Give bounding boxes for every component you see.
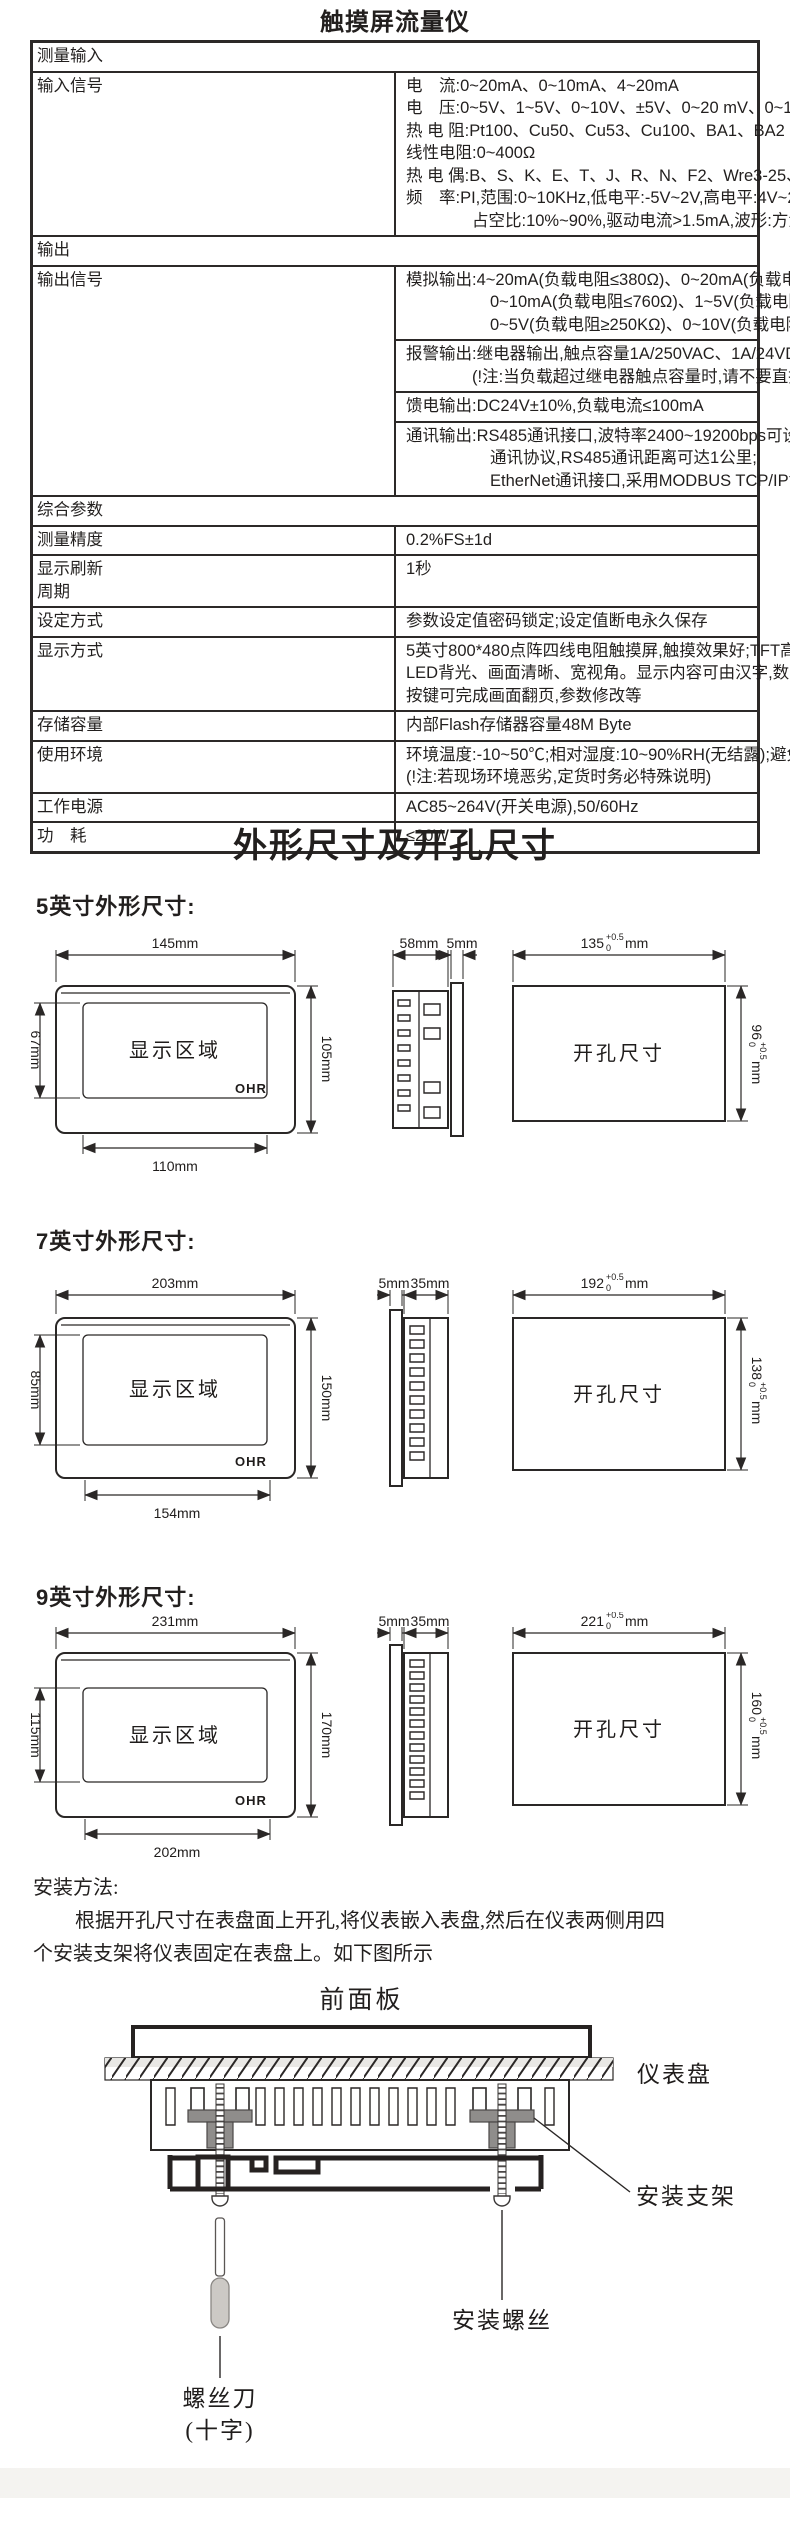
- table-row: 测量精度 0.2%FS±1d: [32, 526, 759, 556]
- cutout-height-dim: 138 +0.5 0 mm: [747, 1357, 768, 1425]
- table-row: 显示刷新 周期 1秒: [32, 555, 759, 607]
- environment-label: 使用环境: [32, 741, 396, 793]
- cutout-height-value: 160: [749, 1692, 765, 1716]
- cutout-label: 开孔尺寸: [573, 1383, 665, 1406]
- cutout-width-value: 135: [581, 935, 605, 951]
- screw-tip: [212, 2196, 228, 2206]
- front-left-dim: 115mm: [28, 1712, 44, 1758]
- cutout-width-tol-minus: 0: [606, 943, 611, 953]
- cutout-height-tol-minus: 0: [747, 1042, 757, 1047]
- screwdriver-handle: [211, 2278, 229, 2328]
- front-view: 145mm 显示区域 OHR 67mm 105mm 110mm: [28, 935, 335, 1174]
- screwdriver: 螺丝刀 (十字): [183, 2218, 258, 2443]
- front-right-dim: 150mm: [319, 1375, 335, 1422]
- cutout-width-value: 192: [581, 1275, 605, 1291]
- dimension-drawing-7inch: 203mm 显示区域 OHR 85mm 150mm 154mm 5mm 35mm…: [0, 1268, 790, 1546]
- output-feed-value: 馈电输出:DC24V±10%,负载电流≤100mA: [395, 392, 759, 422]
- table-row: 综合参数: [32, 496, 759, 526]
- table-row: 输出信号 模拟输出:4~20mA(负载电阻≤380Ω)、0~20mA(负载电阻≤…: [32, 266, 759, 341]
- setting-label: 设定方式: [32, 607, 396, 637]
- cutout-view: 192 +0.5 0 mm 开孔尺寸 138 +0.5 0 mm: [513, 1272, 768, 1470]
- spec-line: (!注:当负载超过继电器触点容量时,请不要直接带负载): [406, 366, 749, 389]
- cutout-width-dim: 221 +0.5 0 mm: [581, 1612, 649, 1631]
- brand-logo: OHR: [235, 1081, 267, 1096]
- terminal-slots: [410, 1660, 424, 1799]
- input-signal-value: 电 流:0~20mA、0~10mA、4~20mA 电 压:0~5V、1~5V、0…: [395, 72, 759, 237]
- refresh-label-line: 显示刷新: [37, 558, 392, 581]
- input-signal-label: 输入信号: [32, 72, 396, 237]
- side-bezel-dim: 5mm: [378, 1275, 409, 1291]
- cutout-height-tol-plus: +0.5: [758, 1717, 768, 1735]
- model-5-heading: 5英寸外形尺寸:: [36, 889, 196, 921]
- front-panel-label: 前面板: [133, 1980, 590, 2016]
- refresh-label-line: 周期: [37, 581, 392, 604]
- side-view: 58mm 5mm: [393, 935, 478, 1136]
- terminal-slots: [410, 1326, 424, 1460]
- spec-line: 电 压:0~5V、1~5V、0~10V、±5V、0~20 mV、0~100mV、…: [406, 97, 749, 120]
- cutout-width-tol-plus: +0.5: [606, 932, 624, 942]
- cutout-height-tol-plus: +0.5: [758, 1382, 768, 1400]
- accuracy-value: 0.2%FS±1d: [395, 526, 759, 556]
- screwdriver-sublabel: (十字): [185, 2418, 254, 2443]
- terminal-slots: [398, 1000, 410, 1111]
- front-top-dim: 231mm: [152, 1613, 199, 1629]
- cutout-width-unit: mm: [625, 1613, 648, 1629]
- side-depth-dim: 58mm: [400, 935, 439, 951]
- accuracy-label: 测量精度: [32, 526, 396, 556]
- model-7-heading: 7英寸外形尺寸:: [36, 1224, 196, 1256]
- display-area-label: 显示区域: [129, 1039, 221, 1062]
- side-bezel-dim: 5mm: [446, 935, 477, 951]
- spec-line: 线性电阻:0~400Ω: [406, 142, 749, 165]
- brand-logo: OHR: [235, 1793, 267, 1808]
- side-view: 5mm 35mm: [377, 1275, 449, 1486]
- front-left-dim: 85mm: [28, 1371, 44, 1410]
- cutout-view: 135 +0.5 0 mm 开孔尺寸 96 +0.5 0 mm: [513, 932, 768, 1121]
- cutout-width-unit: mm: [625, 1275, 648, 1291]
- datasheet-page: { "page_title": "触摸屏流量仪", "spec_table": …: [0, 0, 790, 2523]
- dimension-drawing-9inch: 231mm 显示区域 OHR 115mm 170mm 202mm 5mm 35m…: [0, 1612, 790, 1874]
- front-right-dim: 170mm: [319, 1712, 335, 1759]
- display-value: 5英寸800*480点阵四线电阻触摸屏,触摸效果好;TFT高亮度彩色图形液晶显示…: [395, 637, 759, 712]
- table-row: 输出: [32, 236, 759, 266]
- spec-line: 占空比:10%~90%,驱动电流>1.5mA,波形:方波、正弦波、三角波等: [406, 210, 749, 233]
- terminal-blocks: [424, 1004, 440, 1118]
- bracket-clamp: [191, 2088, 204, 2112]
- cutout-height-dim: 96 +0.5 0 mm: [747, 1024, 768, 1084]
- spec-line: 按键可完成画面翻页,参数修改等: [406, 685, 749, 708]
- installation-diagram: 仪表盘 安装支架 安装螺丝: [0, 2012, 790, 2468]
- cutout-label: 开孔尺寸: [573, 1718, 665, 1741]
- spec-line: 模拟输出:4~20mA(负载电阻≤380Ω)、0~20mA(负载电阻≤380Ω)…: [406, 269, 749, 292]
- front-left-dim: 67mm: [28, 1031, 44, 1070]
- dimension-drawing-5inch: 145mm 显示区域 OHR 67mm 105mm 110mm 58mm 5mm…: [0, 928, 790, 1194]
- display-area-label: 显示区域: [129, 1724, 221, 1747]
- front-top-dim: 145mm: [152, 935, 199, 951]
- front-panel-shape: [133, 2027, 590, 2058]
- install-heading: 安装方法:: [33, 1872, 757, 1905]
- spec-line: 1秒: [406, 558, 749, 581]
- table-row: 显示方式 5英寸800*480点阵四线电阻触摸屏,触摸效果好;TFT高亮度彩色图…: [32, 637, 759, 712]
- spec-line: 0~10mA(负载电阻≤760Ω)、1~5V(负载电阻≥250KΩ)、: [406, 291, 749, 314]
- front-bottom-dim: 110mm: [152, 1158, 198, 1174]
- environment-value: 环境温度:-10~50℃;相对湿度:10~90%RH(无结露);避免强腐蚀气体。…: [395, 741, 759, 793]
- panel-label: 仪表盘: [637, 2062, 712, 2087]
- spec-line: EtherNet通讯接口,采用MODBUS TCP/IP协议,通讯速率为10/1…: [406, 470, 749, 493]
- spec-line: 报警输出:继电器输出,触点容量1A/250VAC、1A/24VDC;固态继电器输…: [406, 343, 749, 366]
- spec-line: 环境温度:-10~50℃;相对湿度:10~90%RH(无结露);避免强腐蚀气体。: [406, 744, 749, 767]
- bezel-plate: [451, 983, 463, 1136]
- cutout-height-dim: 160 +0.5 0 mm: [747, 1692, 768, 1760]
- lower-housing: [170, 2155, 541, 2189]
- screw-label: 安装螺丝: [452, 2308, 552, 2333]
- bracket-clamp: [473, 2088, 486, 2112]
- screw-tip: [494, 2196, 510, 2206]
- front-view: 203mm 显示区域 OHR 85mm 150mm 154mm: [28, 1275, 335, 1521]
- spec-line: 频 率:PI,范围:0~10KHz,低电平:-5V~2V,高电平:4V~26V,: [406, 187, 749, 210]
- side-depth-dim: 35mm: [411, 1275, 450, 1291]
- table-row: 测量输入: [32, 42, 759, 72]
- storage-label: 存储容量: [32, 711, 396, 741]
- brand-logo: OHR: [235, 1454, 267, 1469]
- front-top-dim: 203mm: [152, 1275, 199, 1291]
- screw-shaft: [498, 2084, 506, 2196]
- spec-line: 0.2%FS±1d: [406, 529, 749, 552]
- spec-line: 5英寸800*480点阵四线电阻触摸屏,触摸效果好;TFT高亮度彩色图形液晶显示…: [406, 640, 749, 663]
- table-row: 使用环境 环境温度:-10~50℃;相对湿度:10~90%RH(无结露);避免强…: [32, 741, 759, 793]
- screwdriver-blade: [216, 2218, 225, 2276]
- spec-line: 馈电输出:DC24V±10%,负载电流≤100mA: [406, 395, 749, 418]
- setting-value: 参数设定值密码锁定;设定值断电永久保存: [395, 607, 759, 637]
- display-area-label: 显示区域: [129, 1378, 221, 1401]
- bracket-leader-line: [534, 2118, 630, 2192]
- refresh-label: 显示刷新 周期: [32, 555, 396, 607]
- cutout-height-tol-minus: 0: [747, 1717, 757, 1722]
- table-row: 存储容量 内部Flash存储器容量48M Byte: [32, 711, 759, 741]
- table-row: 输入信号 电 流:0~20mA、0~10mA、4~20mA 电 压:0~5V、1…: [32, 72, 759, 237]
- spec-line: (!注:若现场环境恶劣,定货时务必特殊说明): [406, 766, 749, 789]
- section-measure-input: 测量输入: [32, 42, 759, 72]
- spec-line: AC85~264V(开关电源),50/60Hz: [406, 796, 749, 819]
- bracket-clamp: [236, 2088, 249, 2112]
- cutout-width-dim: 135 +0.5 0 mm: [581, 932, 649, 953]
- side-bezel-dim: 5mm: [378, 1613, 409, 1629]
- side-depth-dim: 35mm: [411, 1613, 450, 1629]
- install-paragraph-line: 个安装支架将仪表固定在表盘上。如下图所示: [33, 1938, 757, 1971]
- cutout-height-unit: mm: [749, 1401, 765, 1424]
- install-paragraph-line: 根据开孔尺寸在表盘面上开孔,将仪表嵌入表盘,然后在仪表两侧用四: [33, 1905, 757, 1938]
- section-general: 综合参数: [32, 496, 759, 526]
- front-right-dim: 105mm: [319, 1036, 335, 1083]
- output-alarm-value: 报警输出:继电器输出,触点容量1A/250VAC、1A/24VDC;固态继电器输…: [395, 340, 759, 392]
- spec-line: 热 电 偶:B、S、K、E、T、J、R、N、F2、Wre3-25、Wre5-26: [406, 165, 749, 188]
- screw-shaft: [216, 2084, 224, 2196]
- bezel-plate: [390, 1645, 402, 1825]
- cutout-height-tol-plus: +0.5: [758, 1042, 768, 1060]
- cutout-width-tol-plus: +0.5: [606, 1272, 624, 1282]
- housing-notch: [252, 2158, 266, 2170]
- table-row: 设定方式 参数设定值密码锁定;设定值断电永久保存: [32, 607, 759, 637]
- install-section: 安装方法: 根据开孔尺寸在表盘面上开孔,将仪表嵌入表盘,然后在仪表两侧用四 个安…: [33, 1872, 757, 1971]
- cutout-width-tol-minus: 0: [606, 1621, 611, 1631]
- cutout-width-value: 221: [581, 1613, 605, 1629]
- output-signal-label: 输出信号: [32, 266, 396, 497]
- cutout-width-tol-plus: +0.5: [606, 1612, 624, 1620]
- front-bottom-dim: 202mm: [154, 1844, 201, 1860]
- cutout-width-dim: 192 +0.5 0 mm: [581, 1272, 649, 1293]
- cutout-view: 221 +0.5 0 mm 开孔尺寸 160 +0.5 0 mm: [513, 1612, 768, 1805]
- spec-line: 热 电 阻:Pt100、Cu50、Cu53、Cu100、BA1、BA2: [406, 120, 749, 143]
- front-view: 231mm 显示区域 OHR 115mm 170mm 202mm: [28, 1613, 335, 1860]
- cutout-label: 开孔尺寸: [573, 1042, 665, 1065]
- spec-line: 参数设定值密码锁定;设定值断电永久保存: [406, 610, 749, 633]
- spec-line: 电 流:0~20mA、0~10mA、4~20mA: [406, 75, 749, 98]
- page-title: 触摸屏流量仪: [0, 2, 790, 37]
- side-view: 5mm 35mm: [377, 1613, 449, 1825]
- output-analog-value: 模拟输出:4~20mA(负载电阻≤380Ω)、0~20mA(负载电阻≤380Ω)…: [395, 266, 759, 341]
- spec-table: 测量输入 输入信号 电 流:0~20mA、0~10mA、4~20mA 电 压:0…: [30, 40, 760, 854]
- spec-line: 通讯输出:RS485通讯接口,波特率2400~19200bps可设置,采用标准M…: [406, 425, 749, 448]
- bracket-clamp: [518, 2088, 531, 2112]
- cutout-height-unit: mm: [749, 1061, 765, 1084]
- cutout-width-tol-minus: 0: [606, 1283, 611, 1293]
- spec-line: LED背光、画面清晰、宽视角。显示内容可由汉字,数字,棒图等组成,通过触摸: [406, 662, 749, 685]
- page-bottom-strip: [0, 2468, 790, 2498]
- refresh-value: 1秒: [395, 555, 759, 607]
- spec-line: 内部Flash存储器容量48M Byte: [406, 714, 749, 737]
- panel-hatch: [105, 2058, 613, 2080]
- bracket-label: 安装支架: [636, 2184, 736, 2209]
- front-bottom-dim: 154mm: [154, 1505, 201, 1521]
- cutout-height-value: 138: [749, 1357, 765, 1381]
- bezel-plate: [390, 1310, 402, 1486]
- spec-line: 通讯协议,RS485通讯距离可达1公里;: [406, 447, 749, 470]
- cutout-height-value: 96: [749, 1024, 765, 1040]
- cutout-height-unit: mm: [749, 1736, 765, 1759]
- output-comm-value: 通讯输出:RS485通讯接口,波特率2400~19200bps可设置,采用标准M…: [395, 422, 759, 497]
- storage-value: 内部Flash存储器容量48M Byte: [395, 711, 759, 741]
- model-9-heading: 9英寸外形尺寸:: [36, 1580, 196, 1612]
- spec-line: 0~5V(负载电阻≥250KΩ)、0~10V(负载电阻≥10KΩ): [406, 314, 749, 337]
- section-output: 输出: [32, 236, 759, 266]
- screwdriver-label: 螺丝刀: [183, 2386, 258, 2411]
- cutout-height-tol-minus: 0: [747, 1382, 757, 1387]
- dimensions-section-title: 外形尺寸及开孔尺寸: [0, 818, 790, 867]
- display-label: 显示方式: [32, 637, 396, 712]
- housing-notch: [276, 2158, 318, 2172]
- cutout-width-unit: mm: [625, 935, 648, 951]
